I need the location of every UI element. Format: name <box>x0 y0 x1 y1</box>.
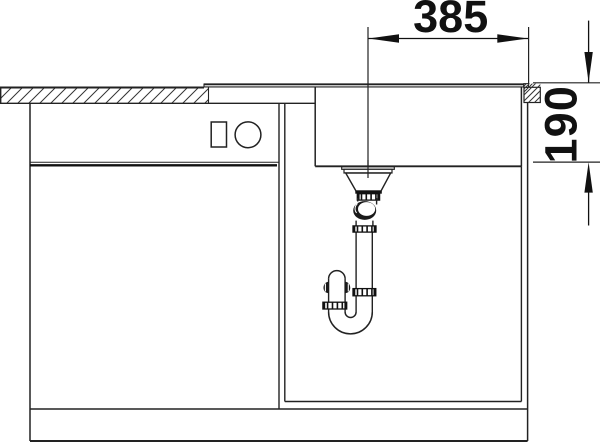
svg-text:190: 190 <box>536 85 587 164</box>
svg-text:385: 385 <box>413 0 488 42</box>
